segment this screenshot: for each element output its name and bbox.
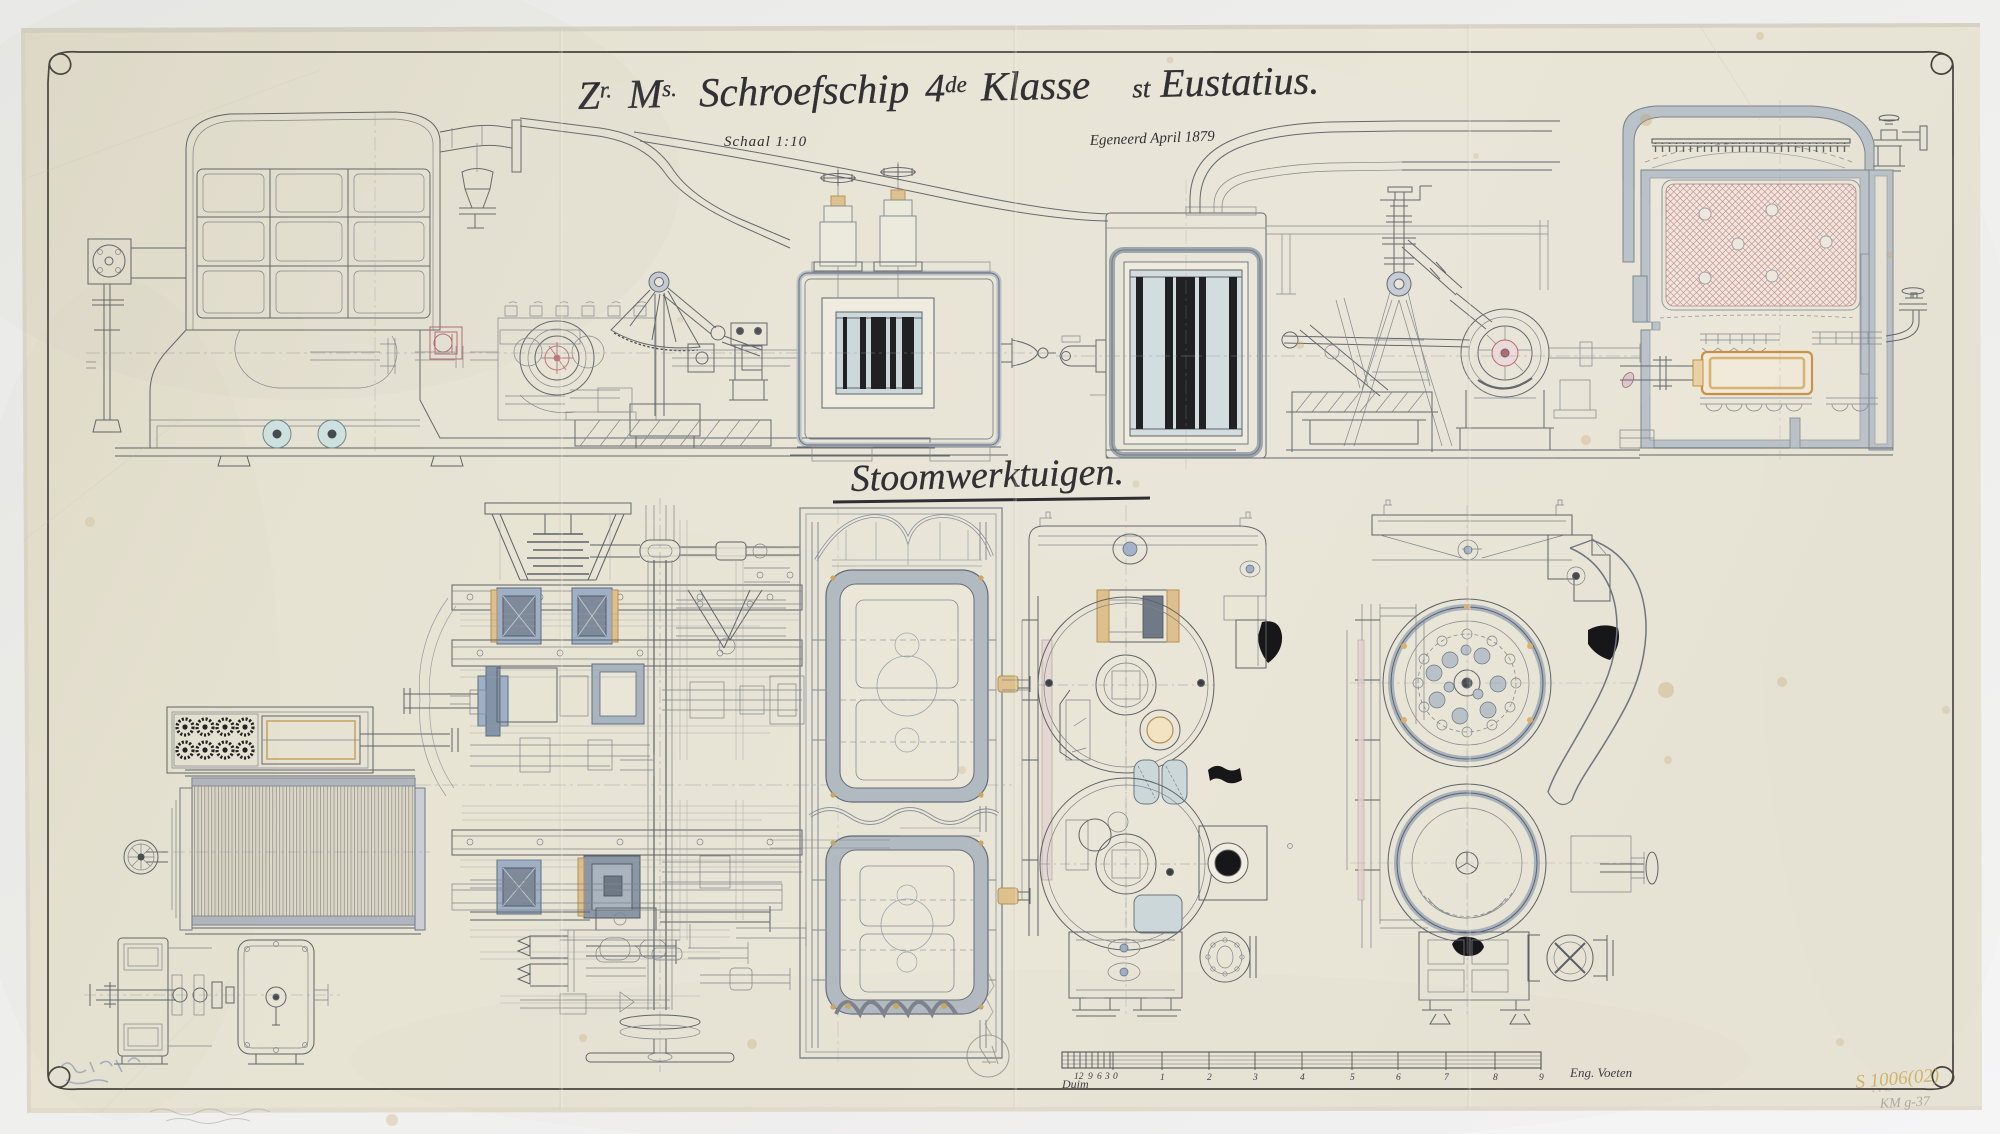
svg-text:KM g-37: KM g-37 — [1878, 1094, 1931, 1112]
svg-text:9: 9 — [1539, 1073, 1544, 1083]
svg-text:4: 4 — [1300, 1073, 1305, 1083]
svg-text:9: 9 — [1088, 1072, 1093, 1082]
svg-text:3: 3 — [1252, 1073, 1258, 1083]
svg-text:Eng. Voeten: Eng. Voeten — [1569, 1065, 1632, 1080]
svg-text:6: 6 — [1396, 1073, 1401, 1083]
svg-text:1: 1 — [1160, 1073, 1165, 1083]
svg-text:0: 0 — [1113, 1072, 1118, 1082]
svg-text:. . ..: . . .. — [1871, 1079, 1891, 1095]
svg-text:2: 2 — [1207, 1073, 1212, 1083]
svg-text:8: 8 — [1493, 1073, 1498, 1083]
svg-text:6: 6 — [1097, 1072, 1102, 1082]
svg-text:3: 3 — [1104, 1072, 1110, 1082]
svg-text:Duim: Duim — [1061, 1077, 1089, 1091]
svg-text:5: 5 — [1350, 1073, 1355, 1083]
